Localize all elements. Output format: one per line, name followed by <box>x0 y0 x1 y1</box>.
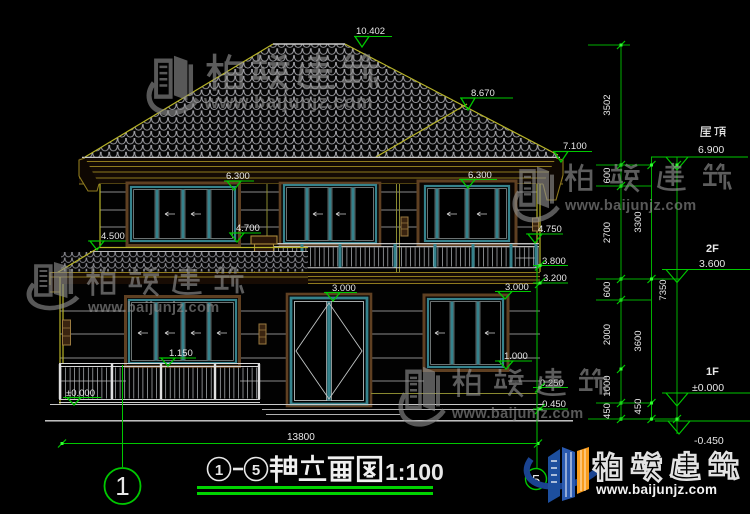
svg-text:450: 450 <box>602 403 613 419</box>
svg-text:3300: 3300 <box>633 211 644 232</box>
svg-text:7350: 7350 <box>658 279 669 300</box>
svg-text:13800: 13800 <box>287 432 315 443</box>
svg-text:1: 1 <box>215 462 223 479</box>
svg-text:3.200: 3.200 <box>543 273 567 284</box>
svg-text:10.402: 10.402 <box>356 26 385 37</box>
svg-text:-0.450: -0.450 <box>694 435 724 447</box>
svg-text:450: 450 <box>633 399 644 415</box>
svg-text:www.baijunjz.com: www.baijunjz.com <box>564 198 697 214</box>
svg-text:3600: 3600 <box>633 330 644 351</box>
svg-text:1F: 1F <box>706 366 719 378</box>
svg-text:2F: 2F <box>706 243 719 255</box>
svg-text:5: 5 <box>252 462 260 479</box>
svg-text:600: 600 <box>602 282 613 298</box>
svg-text:www.baijunjz.com: www.baijunjz.com <box>451 406 584 422</box>
svg-text:1:100: 1:100 <box>385 459 444 485</box>
svg-text:2000: 2000 <box>602 324 613 345</box>
svg-text:3502: 3502 <box>602 94 613 115</box>
svg-text:7.100: 7.100 <box>563 141 587 152</box>
svg-text:www.baijunjz.com: www.baijunjz.com <box>87 300 220 316</box>
svg-text:±0.000: ±0.000 <box>692 382 724 394</box>
svg-text:1: 1 <box>115 471 129 501</box>
svg-text:3.600: 3.600 <box>699 258 725 270</box>
svg-text:www.baijunjz.com: www.baijunjz.com <box>203 91 373 112</box>
svg-text:2700: 2700 <box>602 222 613 243</box>
svg-text:6.900: 6.900 <box>698 144 724 156</box>
svg-text:www.baijunjz.com: www.baijunjz.com <box>595 482 717 497</box>
